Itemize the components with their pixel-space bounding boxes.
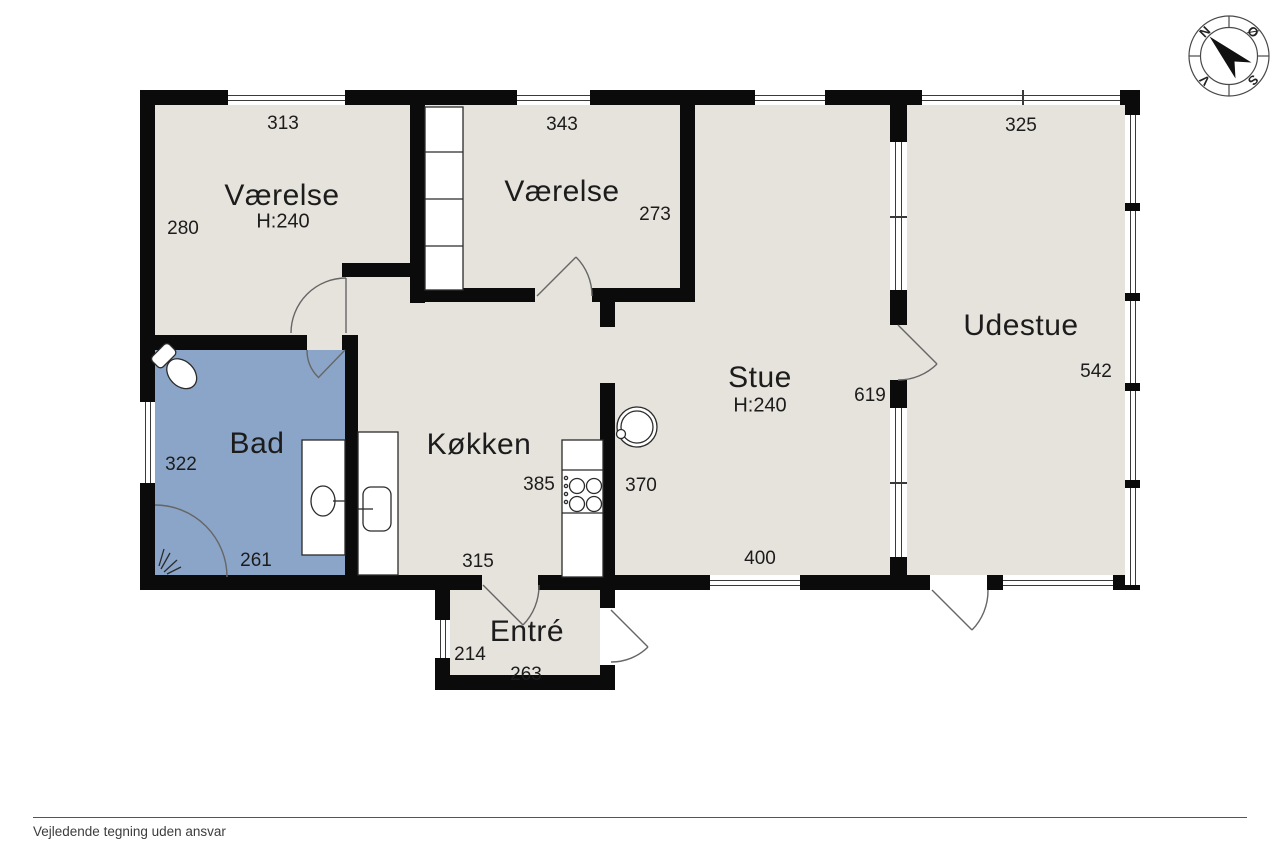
compass-rose-icon: N Ø S V: [1187, 14, 1271, 98]
door-arc-bedroom1: [291, 278, 346, 333]
dimension-label-263: 263: [510, 664, 542, 686]
kitchen-stove-counter-icon: [562, 440, 603, 577]
room-ceiling-stue: H:240: [733, 395, 786, 418]
room-label-vaerelse1: Værelse: [224, 179, 339, 213]
dimension-label-325: 325: [1005, 115, 1037, 137]
dimension-label-261: 261: [240, 550, 272, 572]
dimension-label-214: 214: [454, 644, 486, 666]
room-label-stue: Stue: [728, 361, 792, 395]
kitchen-sink-counter-icon: [358, 432, 398, 575]
dimension-label-385: 385: [523, 474, 555, 496]
toilet-icon: [150, 342, 203, 395]
compass-label-south: S: [1245, 72, 1262, 89]
door-arc-bedroom2: [537, 257, 592, 296]
wood-stove-icon: [617, 407, 658, 447]
dimension-label-313: 313: [267, 113, 299, 135]
dimension-label-542: 542: [1080, 361, 1112, 383]
dimension-label-280: 280: [167, 218, 199, 240]
footer-divider: [33, 817, 1247, 818]
room-label-koekken: Køkken: [427, 428, 532, 462]
dimension-label-400: 400: [744, 548, 776, 570]
compass-label-east: Ø: [1244, 23, 1262, 41]
floorplan-page: Værelse H:240 Værelse Udestue Stue H:240…: [0, 0, 1280, 853]
compass-needle-icon: [1210, 37, 1252, 79]
dimension-label-619: 619: [854, 385, 886, 407]
fixtures-and-doors-layer: [0, 0, 1280, 853]
room-label-entre: Entré: [490, 615, 564, 649]
dimension-label-343: 343: [546, 114, 578, 136]
room-ceiling-vaerelse1: H:240: [256, 211, 309, 234]
shower-icon: [155, 505, 227, 577]
dimension-label-273: 273: [639, 204, 671, 226]
dimension-label-322: 322: [165, 454, 197, 476]
footer-disclaimer: Vejledende tegning uden ansvar: [33, 824, 226, 839]
compass-label-west: V: [1196, 72, 1213, 89]
dimension-label-370: 370: [625, 475, 657, 497]
door-arc-stue-udestue: [898, 325, 937, 380]
room-label-bad: Bad: [230, 427, 285, 461]
door-arc-entre-exterior: [611, 610, 648, 662]
door-arc-bathroom: [307, 350, 345, 378]
bathroom-vanity-icon: [302, 440, 345, 555]
door-arc-udestue-exterior: [932, 590, 988, 630]
room-label-udestue: Udestue: [963, 309, 1078, 343]
wardrobe-icon: [425, 107, 463, 290]
room-label-vaerelse2: Værelse: [504, 175, 619, 209]
dimension-label-315: 315: [462, 551, 494, 573]
